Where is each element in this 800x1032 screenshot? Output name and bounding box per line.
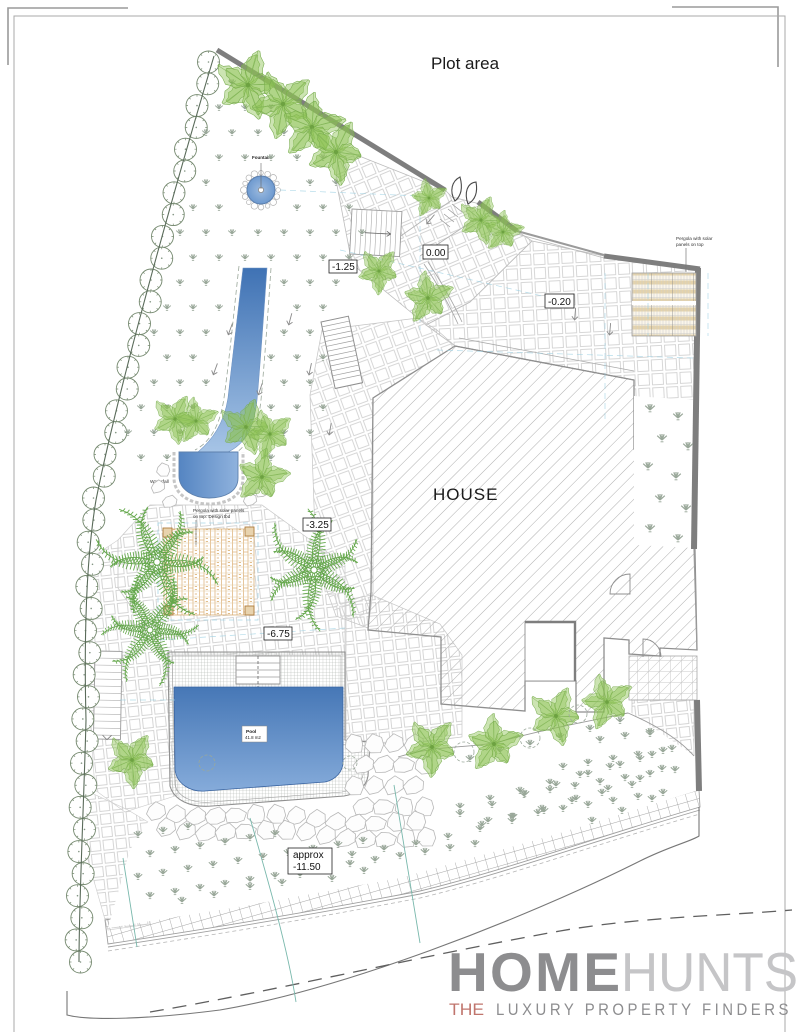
svg-text:-3.25: -3.25 <box>306 520 329 531</box>
svg-text:approx: approx <box>293 850 324 861</box>
svg-text:THE: THE <box>449 1000 484 1019</box>
svg-text:-1.25: -1.25 <box>332 262 355 273</box>
svg-text:41.8 m2: 41.8 m2 <box>245 735 261 740</box>
svg-text:-11.50: -11.50 <box>293 862 321 873</box>
svg-text:0.00: 0.00 <box>426 248 446 259</box>
svg-text:-6.75: -6.75 <box>267 629 290 640</box>
svg-text:-0.20: -0.20 <box>548 297 571 308</box>
svg-text:HOUSE: HOUSE <box>433 485 498 504</box>
svg-text:LUXURY PROPERTY FINDERS: LUXURY PROPERTY FINDERS <box>496 1000 792 1019</box>
svg-text:on top: Design tbd: on top: Design tbd <box>193 514 231 519</box>
svg-text:Pergola with solar panels: Pergola with solar panels <box>193 508 245 513</box>
svg-text:Pergola with solar: Pergola with solar <box>676 236 713 241</box>
svg-text:Fountain: Fountain <box>252 155 271 160</box>
svg-text:panels on top: panels on top <box>676 242 704 247</box>
svg-text:HUNTS: HUNTS <box>621 941 798 1003</box>
svg-text:Plot area: Plot area <box>431 54 500 73</box>
